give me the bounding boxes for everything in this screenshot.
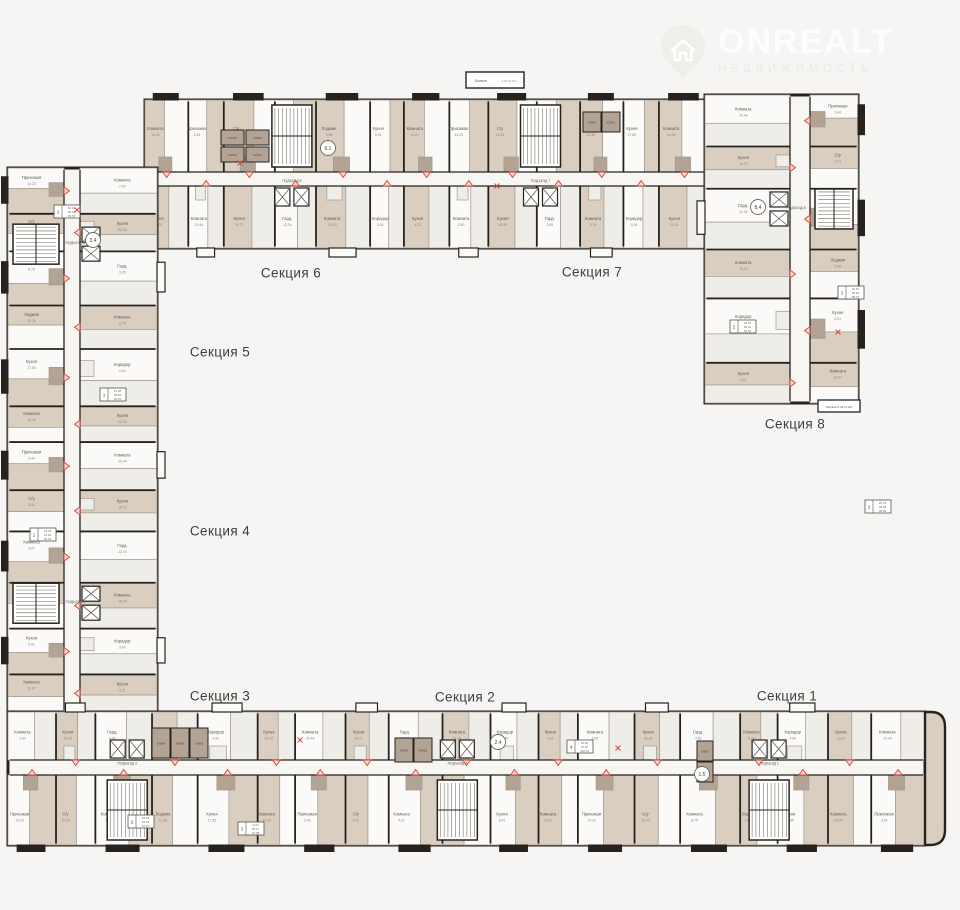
svg-text:4.21: 4.21 — [547, 737, 554, 741]
svg-text:Комната: Комната — [14, 730, 31, 735]
svg-text:1: 1 — [57, 210, 60, 215]
svg-text:ПОДЪЕЗД 6: ПОДЪЕЗД 6 — [282, 179, 301, 183]
wing-sections-6-7-top-bar: Комната10.26Кухня13.02Прихожая3.44Комнат… — [145, 93, 710, 257]
svg-text:4.21: 4.21 — [414, 223, 421, 227]
svg-text:Комната: Комната — [191, 216, 208, 221]
svg-text:17.85: 17.85 — [208, 819, 217, 823]
svg-text:4.21: 4.21 — [119, 689, 126, 693]
svg-text:Кухня: Кухня — [263, 730, 274, 735]
svg-text:11.07: 11.07 — [834, 375, 842, 379]
svg-text:3.40: 3.40 — [377, 223, 384, 227]
svg-text:4: 4 — [570, 745, 573, 750]
svg-text:16.71: 16.71 — [739, 162, 748, 166]
svg-text:Лоджия: Лоджия — [830, 257, 845, 262]
svg-text:С/у: С/у — [835, 153, 842, 158]
svg-text:16.71: 16.71 — [235, 223, 244, 227]
svg-text:Гард.: Гард. — [117, 264, 127, 269]
svg-text:КЛ/06: КЛ/06 — [253, 136, 261, 140]
svg-text:42.48: 42.48 — [252, 831, 260, 835]
svg-text:16.71: 16.71 — [354, 737, 363, 741]
svg-text:Прихожая: Прихожая — [22, 450, 41, 455]
svg-text:Комната: Комната — [453, 216, 470, 221]
svg-text:12.24: 12.24 — [118, 550, 127, 554]
svg-text:6.91: 6.91 — [499, 819, 506, 823]
svg-text:45.03: 45.03 — [44, 537, 52, 541]
svg-text:17.85: 17.85 — [27, 366, 36, 370]
svg-text:3.44: 3.44 — [881, 819, 888, 823]
svg-text:11.07: 11.07 — [411, 133, 419, 137]
svg-text:12.36: 12.36 — [159, 819, 168, 823]
svg-text:Комната: Комната — [663, 126, 680, 131]
svg-text:Комната: Комната — [114, 452, 131, 457]
svg-text:Кухня: Кухня — [545, 730, 556, 735]
svg-text:4.67: 4.67 — [398, 819, 405, 823]
svg-text:Кухня: Кухня — [643, 730, 654, 735]
svg-text:ПОДЪЕЗД 7: ПОДЪЕЗД 7 — [531, 179, 550, 183]
svg-text:2.50: 2.50 — [119, 185, 126, 189]
svg-text:Коридор: Коридор — [207, 730, 224, 735]
svg-text:КЛ/03: КЛ/03 — [228, 153, 236, 157]
svg-text:10.26: 10.26 — [27, 418, 36, 422]
svg-text:С/у: С/у — [28, 496, 35, 501]
svg-text:Гард.: Гард. — [117, 543, 127, 548]
svg-text:3.4: 3.4 — [90, 238, 97, 244]
svg-text:КЛ/01: КЛ/01 — [588, 120, 596, 124]
svg-text:Прихожая: Прихожая — [874, 812, 893, 817]
svg-text:КЛ/05: КЛ/05 — [228, 136, 236, 140]
svg-text:64.79: 64.79 — [744, 329, 752, 333]
svg-text:Комната: Комната — [393, 812, 410, 817]
svg-text:8.79: 8.79 — [691, 819, 698, 823]
svg-text:Комната: Комната — [449, 730, 466, 735]
svg-text:Прихожая: Прихожая — [297, 812, 316, 817]
svg-text:52.26: 52.26 — [644, 737, 653, 741]
svg-text:5.76: 5.76 — [590, 223, 597, 227]
svg-text:Гард.: Гард. — [107, 730, 117, 735]
svg-text:3.44: 3.44 — [835, 110, 842, 114]
svg-text:Комната: Комната — [23, 679, 40, 684]
svg-text:Коридор: Коридор — [497, 730, 514, 735]
svg-text:КЛ/05: КЛ/05 — [176, 741, 184, 745]
svg-text:ПОДЪЕЗД 1: ПОДЪЕЗД 1 — [759, 762, 778, 766]
svg-text:Кухня: Кухня — [738, 155, 749, 160]
svg-text:15.29: 15.29 — [328, 223, 337, 227]
svg-text:ПОДЪЕЗД 4: ПОДЪЕЗД 4 — [66, 600, 85, 604]
svg-text:Комната: Комната — [587, 730, 604, 735]
svg-text:Балкон: Балкон — [475, 79, 487, 83]
svg-text:Прихожая: Прихожая — [449, 126, 468, 131]
svg-text:15.29: 15.29 — [739, 267, 748, 271]
svg-text:1.5: 1.5 — [699, 772, 706, 778]
svg-text:С/у: С/у — [28, 219, 35, 224]
svg-text:14.23: 14.23 — [587, 819, 596, 823]
svg-text:10.43: 10.43 — [61, 819, 70, 823]
svg-text:5.41: 5.41 — [835, 160, 842, 164]
svg-text:9.98: 9.98 — [326, 133, 333, 137]
svg-text:С/у: С/у — [497, 126, 504, 131]
svg-text:11.07: 11.07 — [27, 686, 35, 690]
svg-text:17.85: 17.85 — [628, 133, 637, 137]
svg-text:10.43: 10.43 — [496, 133, 505, 137]
svg-text:ПОДЪЕЗД 8: ПОДЪЕЗД 8 — [786, 206, 805, 210]
svg-text:6.91: 6.91 — [375, 133, 382, 137]
svg-text:52.26: 52.26 — [64, 737, 73, 741]
svg-text:14.23: 14.23 — [15, 819, 24, 823]
svg-text:Комната: Комната — [147, 126, 164, 131]
svg-text:5.76: 5.76 — [119, 322, 126, 326]
svg-text:КЛ/07: КЛ/07 — [701, 749, 709, 753]
svg-text:Гард.: Гард. — [545, 216, 555, 221]
svg-text:Кухня: Кухня — [62, 730, 73, 735]
svg-text:39.78: 39.78 — [68, 214, 76, 218]
logo-subtitle: НЕДВИЖИМОСТЬ — [718, 63, 894, 75]
svg-text:10.26: 10.26 — [834, 819, 843, 823]
svg-text:Кухня: Кухня — [496, 812, 507, 817]
wing-section-8-right-wing: Прихожая3.44Комната20.44С/у5.41Кухня16.7… — [697, 95, 865, 403]
svg-text:Кухня: Кухня — [835, 730, 846, 735]
svg-text:Кухня: Кухня — [669, 216, 680, 221]
svg-text:Гард.: Гард. — [738, 203, 748, 208]
svg-text:Коридор: Коридор — [784, 730, 801, 735]
svg-text:КЛ/04: КЛ/04 — [253, 153, 261, 157]
svg-text:Кухня: Кухня — [234, 216, 245, 221]
svg-text:Комната: Комната — [407, 126, 424, 131]
svg-text:Комната: Комната — [258, 812, 275, 817]
svg-text:1: 1 — [241, 827, 244, 832]
svg-text:14.23: 14.23 — [27, 182, 36, 186]
svg-text:6.1: 6.1 — [325, 146, 332, 152]
svg-text:3.40: 3.40 — [119, 645, 126, 649]
svg-text:4.21: 4.21 — [740, 378, 747, 382]
svg-text:6.91: 6.91 — [835, 317, 842, 321]
svg-text:4.54: 4.54 — [631, 223, 638, 227]
svg-text:5.41: 5.41 — [353, 819, 360, 823]
svg-text:1: 1 — [841, 291, 844, 296]
svg-text:С/у: С/у — [62, 812, 69, 817]
svg-text:Кухня: Кухня — [206, 812, 217, 817]
svg-text:Прихожая: Прихожая — [582, 812, 601, 817]
svg-text:Комната: Комната — [743, 730, 760, 735]
svg-text:Гард.: Гард. — [693, 730, 703, 735]
svg-text:Комната: Комната — [23, 411, 40, 416]
svg-text:2: 2 — [868, 505, 871, 510]
svg-text:Лоджия: Лоджия — [322, 126, 337, 131]
svg-text:Кухня: Кухня — [117, 221, 128, 226]
svg-text:Комната: Комната — [830, 368, 847, 373]
svg-text:14.23: 14.23 — [454, 133, 463, 137]
svg-text:8.79: 8.79 — [28, 267, 35, 271]
svg-text:15.29: 15.29 — [118, 600, 127, 604]
svg-text:4.54: 4.54 — [119, 369, 126, 373]
svg-text:Кухня: Кухня — [26, 636, 37, 641]
svg-text:13.02: 13.02 — [118, 420, 127, 424]
svg-text:Кухня: Кухня — [738, 371, 749, 376]
svg-text:9.98: 9.98 — [835, 264, 842, 268]
svg-text:3.07 (3.07): 3.07 (3.07) — [502, 79, 517, 83]
svg-text:4.54: 4.54 — [212, 737, 219, 741]
svg-text:8.4: 8.4 — [755, 205, 762, 211]
svg-text:10.43: 10.43 — [641, 819, 650, 823]
svg-text:Комната: Комната — [114, 178, 131, 183]
svg-text:13.02: 13.02 — [265, 737, 274, 741]
svg-text:4.67: 4.67 — [28, 547, 35, 551]
svg-text:48.99: 48.99 — [879, 509, 887, 513]
svg-text:С/у: С/у — [353, 812, 360, 817]
svg-text:Коридор: Коридор — [114, 362, 131, 367]
svg-text:12.24: 12.24 — [283, 223, 292, 227]
svg-text:ПОДЪЕЗД 2: ПОДЪЕЗД 2 — [448, 762, 467, 766]
svg-text:20.44: 20.44 — [195, 223, 204, 227]
svg-text:Кухня: Кухня — [353, 730, 364, 735]
svg-text:2.4: 2.4 — [495, 740, 502, 746]
svg-text:КЛ/04: КЛ/04 — [157, 741, 165, 745]
svg-text:3.44: 3.44 — [194, 133, 201, 137]
svg-text:3.44: 3.44 — [28, 457, 35, 461]
svg-text:Гард.: Гард. — [282, 216, 292, 221]
svg-text:40.02: 40.02 — [114, 397, 122, 401]
svg-text:Кухня: Кухня — [373, 126, 384, 131]
svg-text:67.07: 67.07 — [142, 824, 150, 828]
svg-text:11.07: 11.07 — [544, 819, 552, 823]
svg-text:Кухня: Кухня — [26, 359, 37, 364]
svg-text:Комната: Комната — [830, 812, 847, 817]
svg-text:Кухня: Кухня — [117, 682, 128, 687]
svg-text:КЛ/02: КЛ/02 — [400, 748, 408, 752]
svg-text:Прихожая: Прихожая — [187, 126, 206, 131]
svg-text:20.44: 20.44 — [118, 459, 127, 463]
page: { "logo": { "title": "ONREALT", "subtitl… — [0, 0, 960, 910]
svg-text:1: 1 — [103, 393, 106, 398]
svg-text:Лоджия 3.02 (4.04): Лоджия 3.02 (4.04) — [826, 405, 853, 409]
svg-text:16.71: 16.71 — [118, 506, 127, 510]
svg-text:3.95: 3.95 — [547, 223, 554, 227]
svg-text:Комната: Комната — [686, 812, 703, 817]
svg-text:13.02: 13.02 — [837, 737, 846, 741]
svg-text:2.50: 2.50 — [19, 737, 26, 741]
svg-text:52.26: 52.26 — [499, 223, 508, 227]
svg-text:Лоджия: Лоджия — [24, 312, 39, 317]
onrealt-logo: ONREALT НЕДВИЖИМОСТЬ — [660, 24, 894, 80]
svg-text:12.36: 12.36 — [586, 133, 595, 137]
svg-text:КЛ/06: КЛ/06 — [195, 741, 203, 745]
svg-text:58.97: 58.97 — [852, 295, 860, 299]
svg-text:Прихожая: Прихожая — [22, 175, 41, 180]
svg-text:Комната: Комната — [114, 315, 131, 320]
svg-text:Кухня: Кухня — [117, 499, 128, 504]
svg-text:Комната: Комната — [114, 593, 131, 598]
svg-text:Комната: Комната — [540, 812, 557, 817]
svg-text:Коридор: Коридор — [114, 638, 131, 643]
svg-text:КЛ/02: КЛ/02 — [607, 120, 615, 124]
svg-text:13.02: 13.02 — [670, 223, 679, 227]
floorplan-stage: Комната10.26Кухня13.02Прихожая3.44Комнат… — [0, 0, 960, 910]
svg-text:20.44: 20.44 — [739, 113, 748, 117]
svg-text:106.70: 106.70 — [580, 749, 589, 753]
svg-text:Прихожая: Прихожая — [10, 812, 29, 817]
svg-text:3.95: 3.95 — [119, 271, 126, 275]
svg-text:Комната: Комната — [879, 730, 896, 735]
svg-text:Коридор: Коридор — [626, 216, 643, 221]
logo-house-pin-icon — [660, 24, 706, 80]
svg-text:3.95: 3.95 — [695, 737, 702, 741]
svg-text:10.26: 10.26 — [151, 133, 160, 137]
wing-sections-1-2-3-bottom-bar: Прихожая14.23Комната2.50С/у10.43Кухня52.… — [8, 703, 925, 852]
svg-text:Лоджия: Лоджия — [156, 812, 171, 817]
svg-text:ПОДЪЕЗД 3: ПОДЪЕЗД 3 — [118, 762, 137, 766]
svg-text:Кухня: Кухня — [497, 216, 508, 221]
svg-text:Кухня: Кухня — [117, 413, 128, 418]
svg-text:2: 2 — [733, 325, 736, 330]
logo-title: ONREALT — [718, 24, 894, 61]
svg-text:4.54: 4.54 — [789, 737, 796, 741]
logo-texts: ONREALT НЕДВИЖИМОСТЬ — [718, 24, 894, 75]
svg-text:Коридор: Коридор — [735, 314, 752, 319]
svg-text:Гард.: Гард. — [400, 730, 410, 735]
wing-sections-4-5-left-wing: Прихожая14.23Комната2.50С/у10.43Кухня52.… — [1, 168, 165, 712]
svg-text:2: 2 — [131, 820, 134, 825]
svg-text:Комната: Комната — [324, 216, 341, 221]
svg-text:2.50: 2.50 — [458, 223, 465, 227]
svg-text:12.24: 12.24 — [739, 210, 748, 214]
svg-text:20.44: 20.44 — [883, 737, 892, 741]
floorplan-canvas: Комната10.26Кухня13.02Прихожая3.44Комнат… — [0, 0, 960, 910]
svg-text:6.91: 6.91 — [28, 643, 35, 647]
svg-text:КЛ/03: КЛ/03 — [419, 748, 427, 752]
svg-text:Комната: Комната — [735, 106, 752, 111]
svg-text:Кухня: Кухня — [626, 126, 637, 131]
svg-text:3.44: 3.44 — [304, 819, 311, 823]
svg-text:Комната: Комната — [735, 260, 752, 265]
svg-text:Комната: Комната — [302, 730, 319, 735]
svg-text:ПОДЪЕЗД 5: ПОДЪЕЗД 5 — [66, 241, 85, 245]
svg-text:Кухня: Кухня — [412, 216, 423, 221]
svg-text:Прихожая: Прихожая — [828, 103, 847, 108]
svg-text:Коридор: Коридор — [372, 216, 389, 221]
svg-text:С/у: С/у — [642, 812, 649, 817]
svg-text:Кухня: Кухня — [832, 310, 843, 315]
svg-text:5.41: 5.41 — [28, 503, 35, 507]
svg-text:20.44: 20.44 — [306, 737, 315, 741]
svg-text:52.26: 52.26 — [118, 228, 127, 232]
svg-text:1: 1 — [33, 533, 36, 538]
svg-text:10.26: 10.26 — [667, 133, 676, 137]
svg-text:12.36: 12.36 — [27, 319, 36, 323]
svg-text:Комната: Комната — [585, 216, 602, 221]
